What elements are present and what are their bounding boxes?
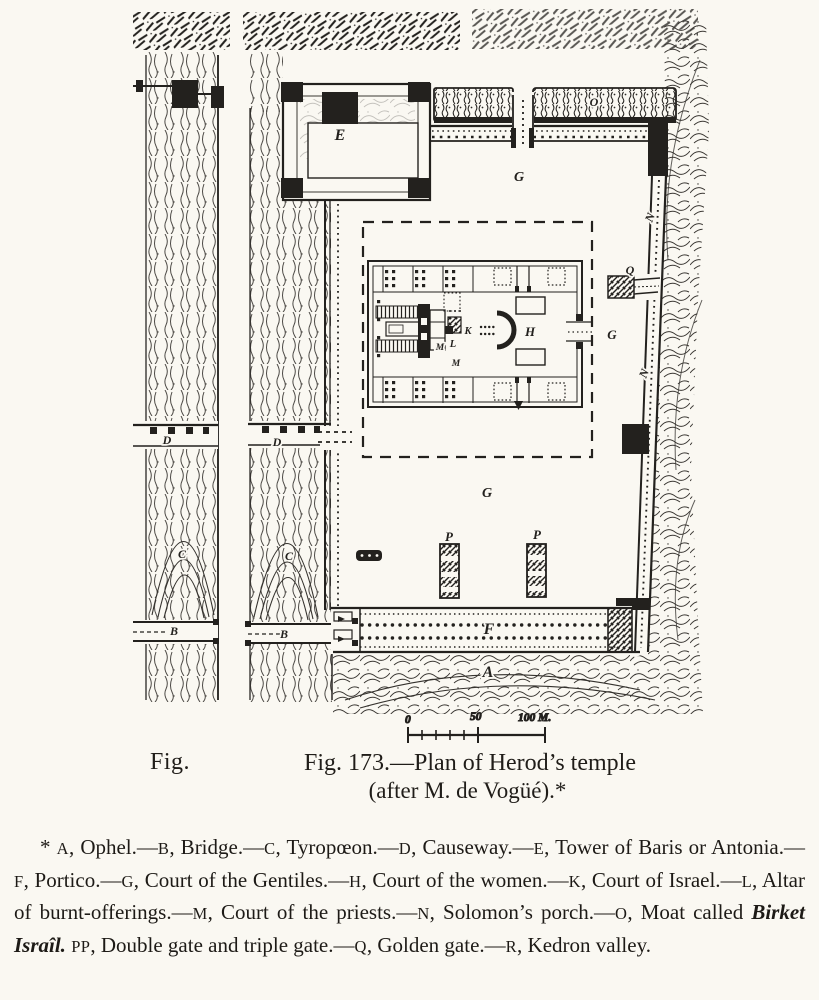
inner-temple-complex (368, 261, 592, 410)
plan-label-B-left: B (169, 624, 178, 638)
legend-item-R: R, Kedron valley. (506, 933, 651, 957)
plan-label-P-left: P (445, 529, 454, 544)
plan-label-G-south: G (482, 486, 492, 501)
plan-label-L: L (449, 339, 456, 350)
scale-bar: 0 50 100 M. (405, 711, 551, 743)
plan-label-F: F (483, 621, 495, 638)
bridge-bands (133, 619, 332, 646)
plan-label-G-east: G (607, 327, 617, 342)
legend-item-K: K, Court of Israel.— (569, 868, 742, 892)
plan-label-M-lower: M (451, 359, 461, 369)
scale-tick-0: 0 (405, 714, 411, 726)
antonia-fortress (281, 82, 430, 200)
scale-tick-50: 50 (470, 711, 482, 723)
scale-tick-100: 100 M. (518, 712, 551, 724)
figure-legend: * A, Ophel.—B, Bridge.—C, Tyropœon.—D, C… (14, 832, 805, 962)
legend-item-PP: PP, Double gate and triple gate.— (71, 933, 354, 957)
moat-birket-israil (434, 88, 676, 123)
plan-label-D-right: D (272, 435, 282, 449)
legend-item-Q: Q, Golden gate.— (355, 933, 506, 957)
legend-item-E: E, Tower of Baris or Antonia.— (534, 835, 805, 859)
golden-gate (608, 276, 634, 298)
legend-item-N: N, Solomon’s porch.— (417, 900, 615, 924)
plan-label-H: H (524, 324, 536, 339)
plan-label-C-left: C (178, 547, 187, 561)
plan-label-E: E (334, 127, 346, 144)
legend-item-A: A, Ophel.— (57, 835, 158, 859)
plan-label-Q: Q (626, 263, 635, 277)
book-page: 0 50 100 M. E G O N Q G N H K L M M D D … (0, 0, 819, 1000)
plan-label-P-right: P (533, 527, 542, 542)
plan-label-M-upper: M (435, 343, 445, 353)
legend-item-C: C, Tyropœon.— (264, 835, 399, 859)
figure-label-left: Fig. (150, 749, 250, 776)
legend-asterisk: * (14, 835, 57, 859)
east-wall-tower (622, 424, 649, 454)
plan-label-G-north: G (514, 170, 524, 185)
plan-label-A: A (482, 664, 494, 681)
legend-item-F: F, Portico.— (14, 868, 121, 892)
plan-label-C-right: C (285, 549, 294, 563)
legend-item-D: D, Causeway.— (399, 835, 534, 859)
plan-label-K: K (463, 326, 472, 337)
plan-label-B-right: B (279, 627, 288, 641)
plan-label-D-left: D (162, 433, 172, 447)
legend-item-B: B, Bridge.— (158, 835, 264, 859)
legend-item-H: H, Court of the women.— (349, 868, 569, 892)
figure-subcaption: (after M. de Vogüé).* (240, 778, 695, 804)
northeast-corner-tower (648, 120, 668, 176)
figure-caption: Fig. 173.—Plan of Herod’s temple (240, 750, 700, 777)
legend-item-G: G, Court of the Gentiles.— (121, 868, 349, 892)
plan-label-O: O (590, 95, 599, 109)
legend-item-M: M, Court of the priests.— (193, 900, 418, 924)
temple-plan-engraving: 0 50 100 M. E G O N Q G N H K L M M D D … (0, 0, 819, 745)
